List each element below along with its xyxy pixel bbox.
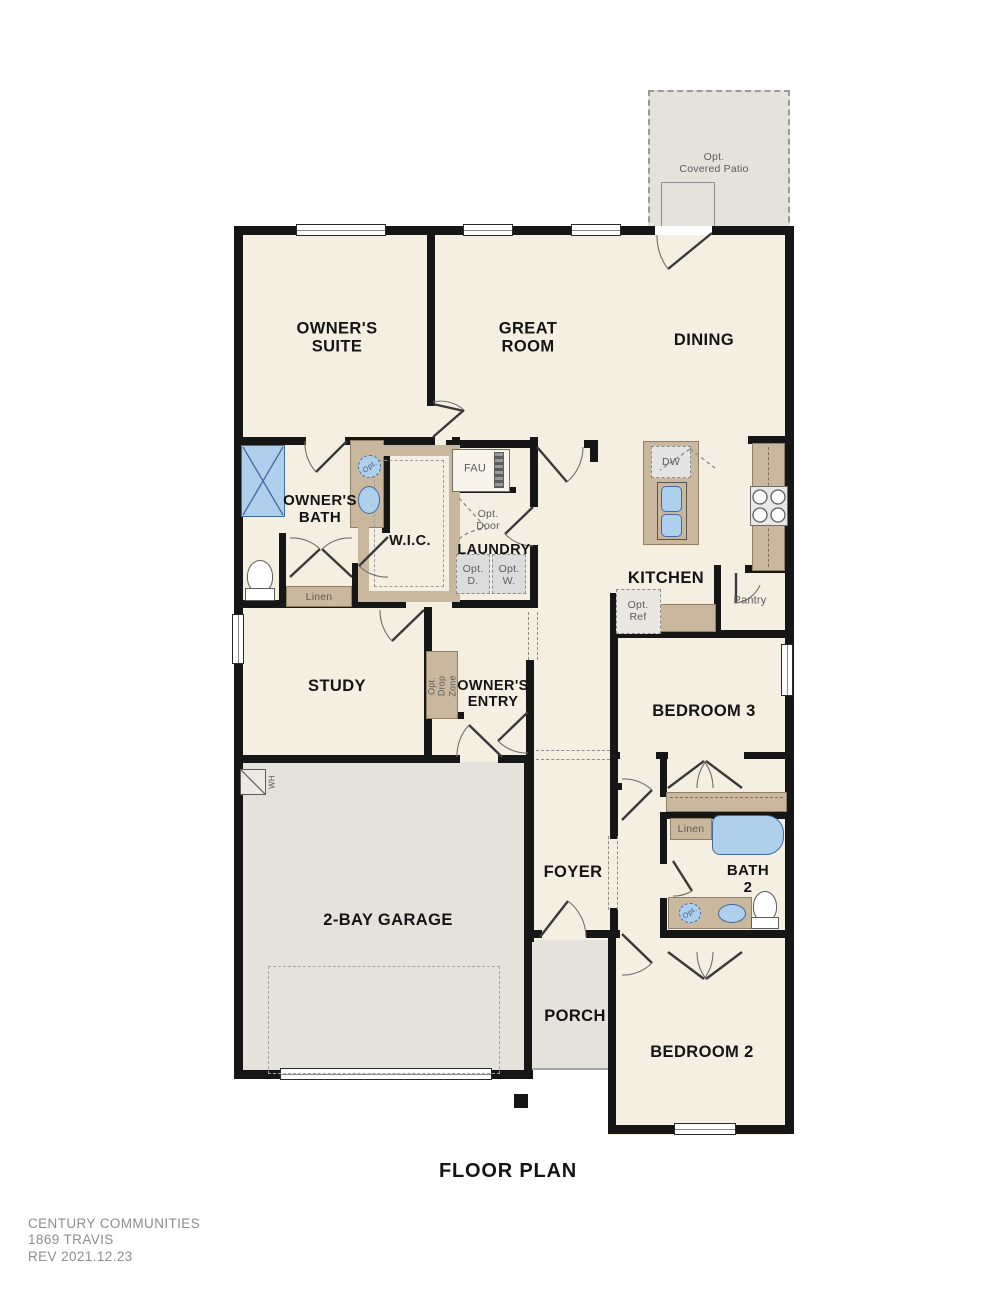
garage-label: 2-BAY GARAGE <box>323 911 453 929</box>
bath2-toilet-tank <box>751 917 779 929</box>
bath2-label: BATH 2 <box>727 863 769 897</box>
footer-company: CENTURY COMMUNITIES <box>28 1216 200 1232</box>
island-sink-basin-2 <box>661 514 682 537</box>
wall-toilet-nook <box>279 533 286 603</box>
porch-column <box>514 1094 528 1108</box>
foyer-label: FOYER <box>544 863 603 881</box>
bedroom2-label: BEDROOM 2 <box>650 1043 754 1061</box>
wic-label: W.I.C. <box>389 533 431 549</box>
bath1-sink <box>358 486 380 514</box>
kitchen-counter-bottom <box>658 604 716 632</box>
fau-unit-strip <box>494 452 504 488</box>
wall-laundry-bottom <box>452 600 538 608</box>
wall-hall-stub-b <box>590 440 598 462</box>
opt-drop-zone-label: Opt. Drop Zone <box>426 675 457 696</box>
wall-garage-top-a <box>234 755 460 763</box>
cased-opening-corridor-foyer <box>536 750 610 760</box>
floor-porch <box>532 940 615 1070</box>
wall-laundry-right-b <box>530 545 538 607</box>
bed3-closet-shelf <box>666 792 787 812</box>
cased-opening-foyer-hall <box>608 836 618 910</box>
window-bed2 <box>674 1123 736 1135</box>
linen-hall-label: Linen <box>678 823 705 835</box>
shower <box>241 445 285 517</box>
bath1-toilet-tank <box>245 588 275 601</box>
bath2-tub <box>712 815 784 855</box>
floor-plan-canvas: Opt. Covered Patio OWNER'S SUITE GREAT R… <box>0 0 1000 1294</box>
bath2-sink <box>718 904 746 923</box>
footer-rev: REV 2021.12.23 <box>28 1249 200 1265</box>
window-suite <box>296 224 386 236</box>
cased-opening-corridor-top <box>528 612 538 660</box>
great-room-label: GREAT ROOM <box>499 320 558 357</box>
wall-suite-greatroom <box>427 226 435 406</box>
wic-shelf-edge <box>374 460 444 587</box>
window-bed3 <box>781 644 793 696</box>
bed3-shelf-edge <box>670 797 783 799</box>
bedroom3-label: BEDROOM 3 <box>652 702 756 720</box>
wall-bath2-left-a <box>660 812 667 864</box>
opt-covered-patio-label: Opt. Covered Patio <box>679 151 748 175</box>
owners-suite-label: OWNER'S SUITE <box>297 320 378 357</box>
garage-door-zone <box>268 966 500 1074</box>
wall-bath2-bottom-b <box>664 930 794 938</box>
footer-block: CENTURY COMMUNITIES 1869 TRAVIS REV 2021… <box>28 1216 200 1265</box>
pantry-label: Pantry <box>734 595 767 608</box>
wall-bed3-bottom-a <box>610 752 620 759</box>
dw-label: DW <box>662 456 680 468</box>
fau-label: FAU <box>464 463 486 476</box>
opt-dryer-label: Opt. D. <box>463 563 484 587</box>
wall-garage-left <box>234 762 243 1079</box>
owners-bath-label: OWNER'S BATH <box>283 493 357 527</box>
floor-bed2 <box>608 940 790 1135</box>
opt-washer-label: Opt. W. <box>499 563 520 587</box>
opt-door-label: Opt. Door <box>476 508 500 532</box>
page-title: FLOOR PLAN <box>439 1160 577 1183</box>
patio-door-gap <box>655 226 712 235</box>
window-study <box>232 614 244 664</box>
linen-bath1-label: Linen <box>306 591 333 603</box>
dining-label: DINING <box>674 331 734 349</box>
cooktop <box>750 486 788 526</box>
water-heater <box>240 769 266 795</box>
porch-edge-line <box>532 1068 614 1070</box>
window-greatroom-2 <box>571 224 621 236</box>
wall-garage-top-b <box>498 755 534 763</box>
wall-suite-bottom-a <box>234 437 306 445</box>
owners-entry-label: OWNER'S ENTRY <box>457 678 529 710</box>
window-greatroom-1 <box>463 224 513 236</box>
island-sink-basin-1 <box>661 486 682 512</box>
wall-bed3-bottom-c <box>744 752 794 759</box>
wall-foyer-bottom-a <box>526 930 542 938</box>
laundry-label: LAUNDRY <box>457 542 530 558</box>
footer-plan: 1869 TRAVIS <box>28 1232 200 1248</box>
floor-corridor-foyer <box>528 610 618 940</box>
wall-bed3-closet-side <box>660 752 667 797</box>
kitchen-label: KITCHEN <box>628 569 704 587</box>
wh-label: WH <box>267 775 276 789</box>
wall-hall-shelf <box>610 783 622 790</box>
study-label: STUDY <box>308 677 366 695</box>
opt-ref-label: Opt. Ref <box>628 599 649 623</box>
porch-label: PORCH <box>544 1007 606 1025</box>
wall-bed2-left <box>608 930 616 1134</box>
